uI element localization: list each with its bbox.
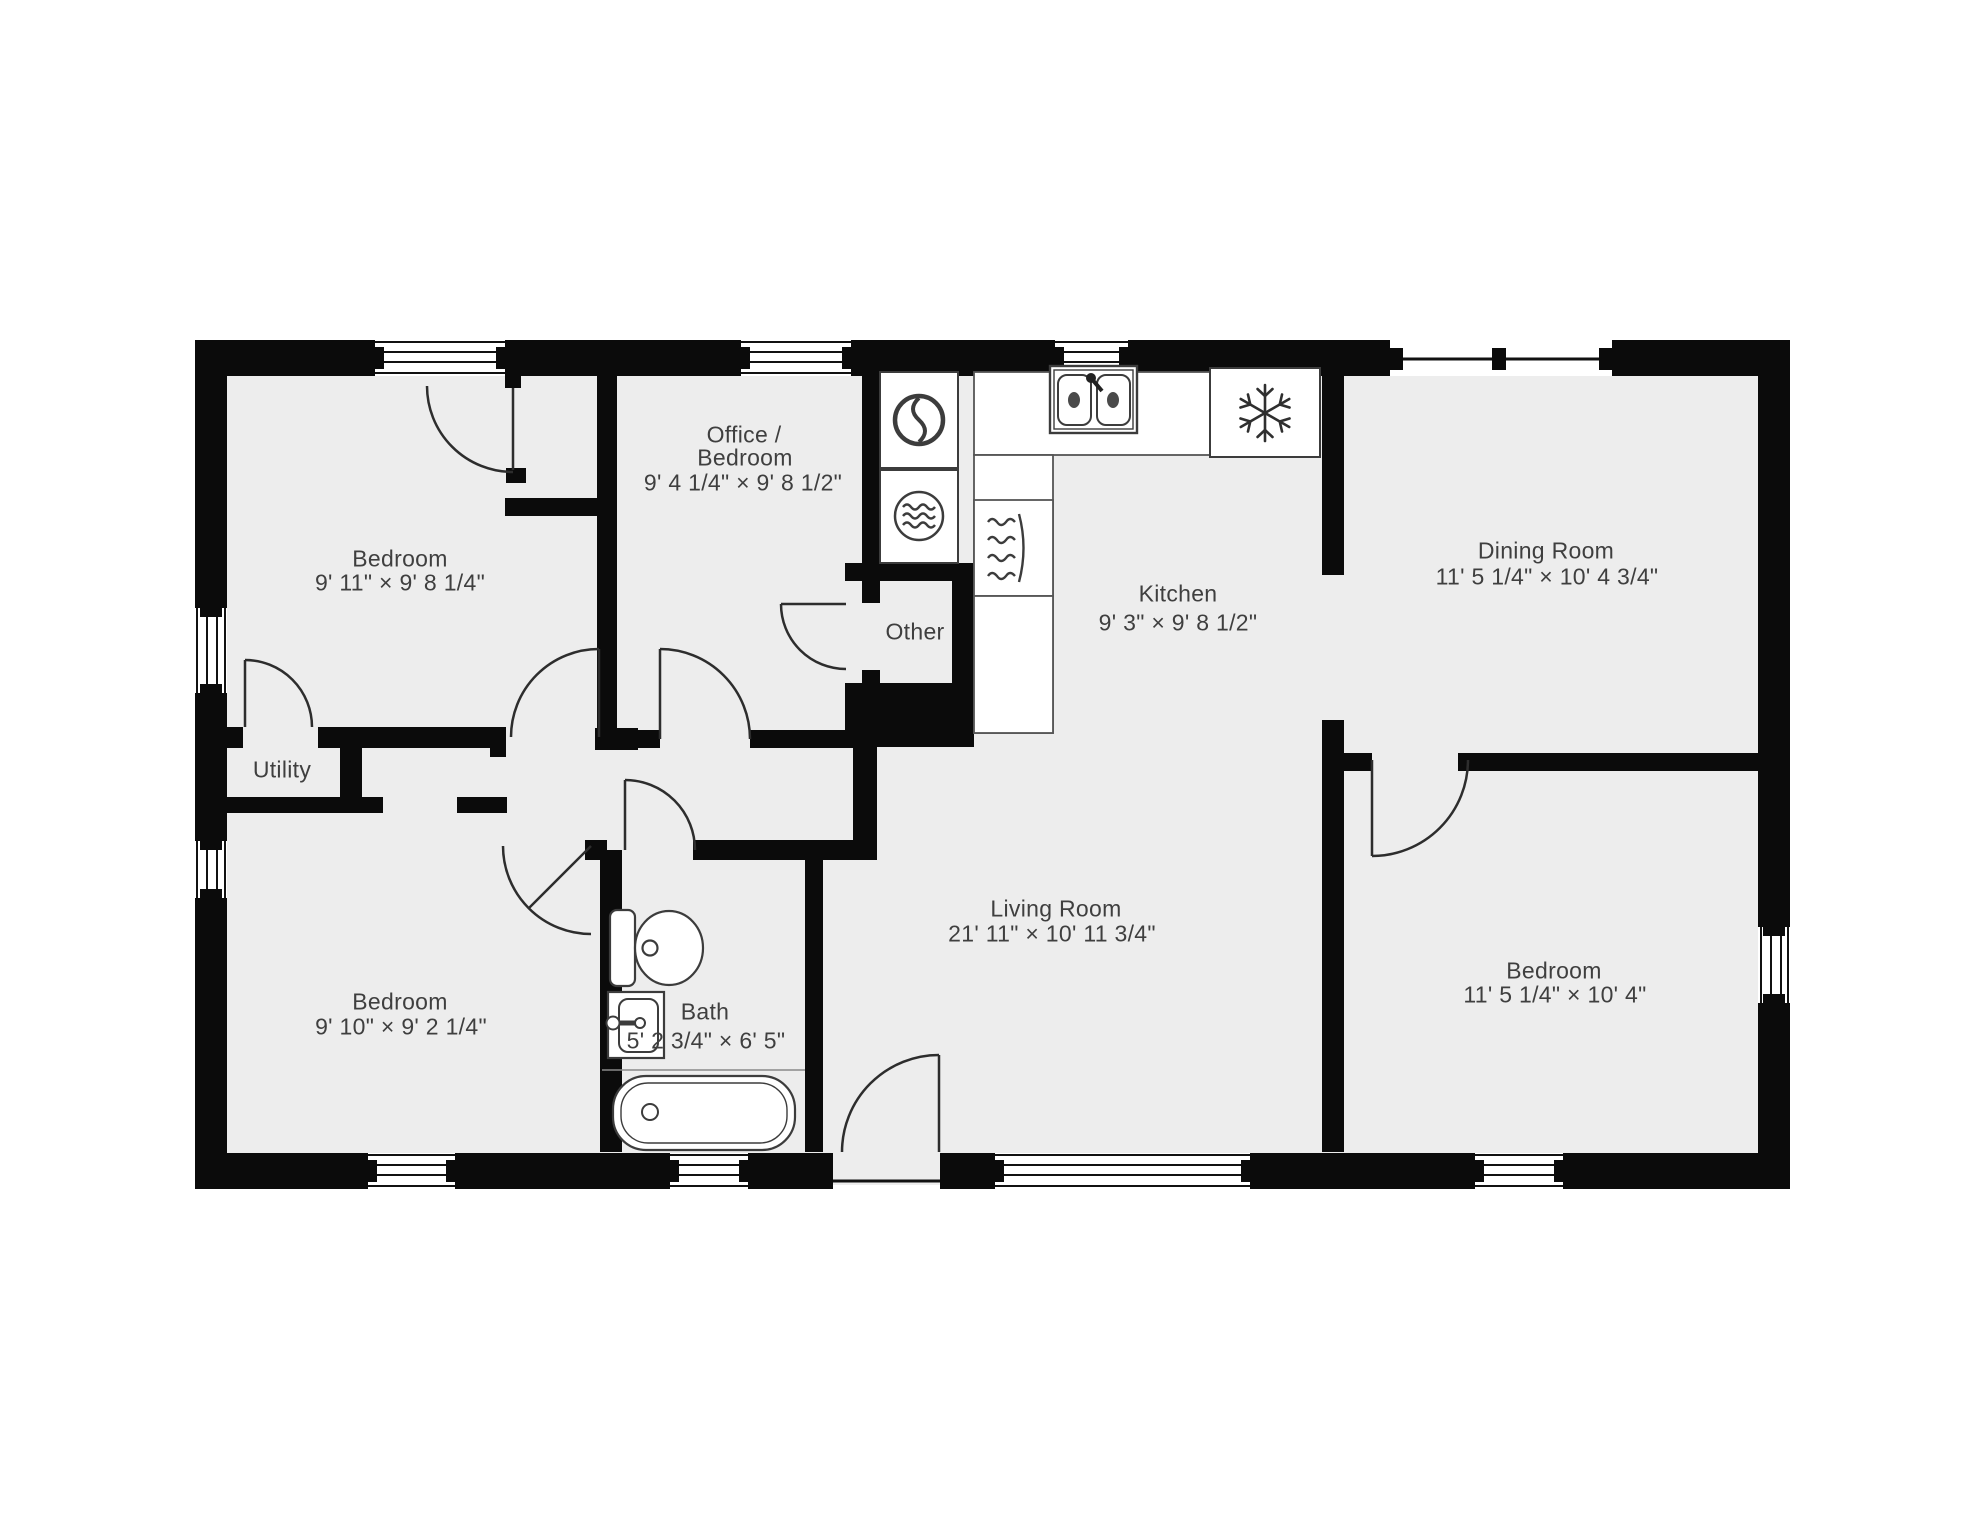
- window-left-bedroom-bl: [195, 841, 227, 898]
- room-label-other: Other: [885, 620, 944, 645]
- room-dims-bedroom-bl: 9' 10" × 9' 2 1/4": [315, 1015, 487, 1040]
- window-bottom-bedroom-br: [1475, 1153, 1563, 1189]
- window-top-bedroom: [375, 340, 505, 376]
- room-label-office-line2: Bedroom: [697, 446, 792, 471]
- room-label-bedroom-bl: Bedroom: [352, 990, 447, 1015]
- room-dims-bedroom-br: 11' 5 1/4" × 10' 4": [1463, 983, 1646, 1008]
- window-top-dining: [1390, 340, 1612, 376]
- room-label-bedroom-br: Bedroom: [1506, 959, 1601, 984]
- washer: [880, 372, 958, 468]
- window-bottom-bath: [670, 1153, 748, 1189]
- kitchen-sink: [1050, 366, 1137, 433]
- room-label-living: Living Room: [990, 897, 1121, 922]
- toilet-icon: [610, 910, 703, 986]
- room-dims-office: 9' 4 1/4" × 9' 8 1/2": [644, 471, 842, 496]
- room-label-utility: Utility: [253, 758, 311, 783]
- room-dims-bedroom-tl: 9' 11" × 9' 8 1/4": [315, 571, 485, 596]
- window-left-bedroom-tl: [195, 608, 227, 693]
- room-label-bath: Bath: [681, 1000, 730, 1025]
- floor-plan: Bedroom 9' 11" × 9' 8 1/4" Office / Bedr…: [0, 0, 1988, 1536]
- room-label-kitchen: Kitchen: [1139, 582, 1218, 607]
- room-dims-dining: 11' 5 1/4" × 10' 4 3/4": [1436, 565, 1659, 590]
- room-dims-bath: 5' 2 3/4" × 6' 5": [627, 1029, 786, 1054]
- room-label-dining: Dining Room: [1478, 539, 1614, 564]
- bathtub-icon: [613, 1076, 795, 1150]
- window-bottom-bedroom-bl: [368, 1153, 455, 1189]
- window-bottom-living: [995, 1153, 1250, 1189]
- room-dims-living: 21' 11" × 10' 11 3/4": [948, 922, 1156, 947]
- dryer: [880, 470, 958, 563]
- room-dims-kitchen: 9' 3" × 9' 8 1/2": [1099, 611, 1258, 636]
- window-top-office: [741, 340, 851, 376]
- window-right-bedroom-br: [1758, 927, 1790, 1003]
- room-label-bedroom-tl: Bedroom: [352, 547, 447, 572]
- refrigerator: [1210, 368, 1320, 457]
